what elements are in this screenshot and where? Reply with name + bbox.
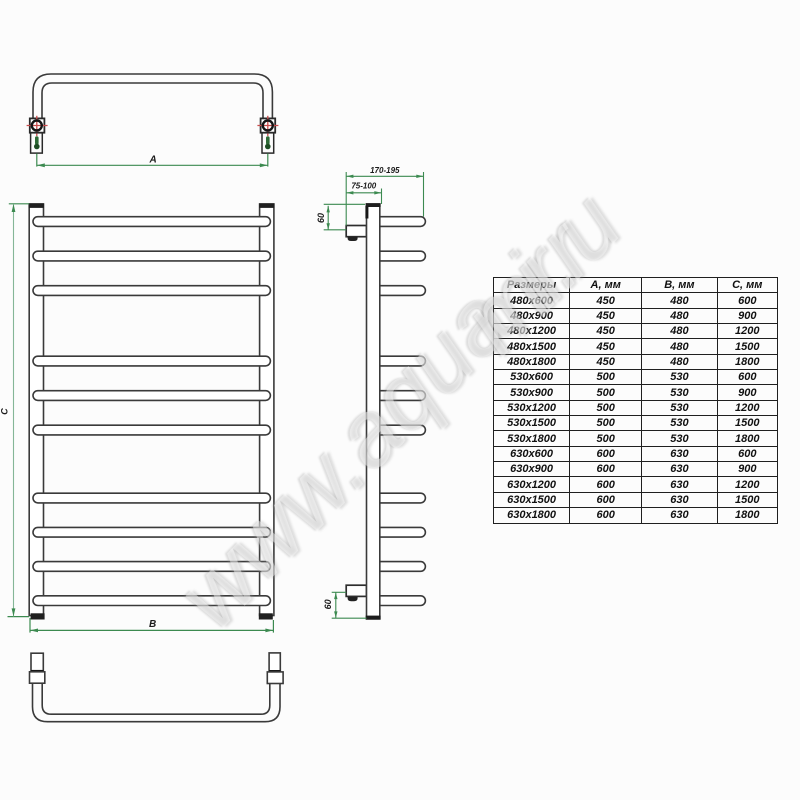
svg-text:75-100: 75-100 — [351, 182, 376, 191]
svg-text:A: A — [149, 155, 157, 166]
svg-text:B: B — [149, 619, 156, 630]
svg-text:170-195: 170-195 — [370, 166, 400, 175]
svg-text:60: 60 — [316, 213, 326, 223]
svg-text:60: 60 — [323, 599, 333, 609]
svg-text:C: C — [0, 408, 10, 415]
